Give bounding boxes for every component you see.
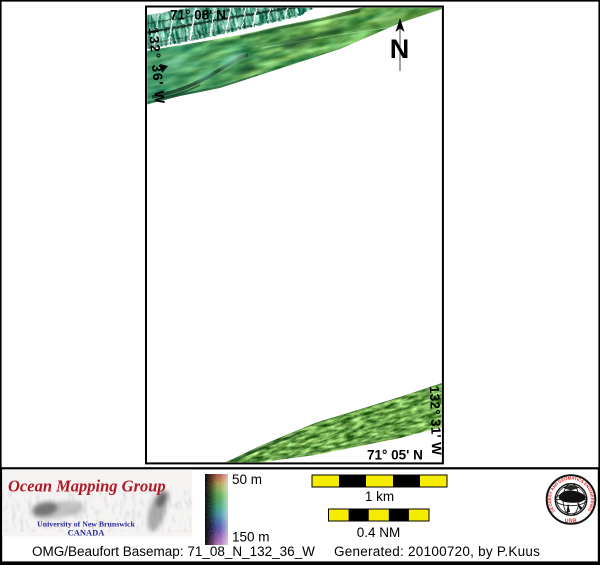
svg-text:0.4 NM: 0.4 NM bbox=[357, 525, 401, 540]
svg-text:UNB: UNB bbox=[565, 519, 577, 525]
svg-text:OMG/Beaufort Basemap: 71_08_N_: OMG/Beaufort Basemap: 71_08_N_132_36_W bbox=[32, 544, 315, 559]
svg-text:132° 31' W: 132° 31' W bbox=[427, 386, 444, 456]
svg-text:150 m: 150 m bbox=[232, 530, 270, 545]
svg-text:Ocean Mapping Group: Ocean Mapping Group bbox=[8, 477, 166, 496]
svg-text:Generated: 20100720, by P.Kuus: Generated: 20100720, by P.Kuus bbox=[334, 544, 540, 559]
svg-text:71° 05' N: 71° 05' N bbox=[367, 448, 423, 463]
svg-text:50 m: 50 m bbox=[232, 472, 262, 487]
svg-text:CANADA: CANADA bbox=[68, 528, 106, 538]
svg-text:1 km: 1 km bbox=[365, 489, 394, 504]
svg-text:N: N bbox=[390, 34, 410, 64]
svg-text:71° 08' N: 71° 08' N bbox=[170, 8, 226, 23]
